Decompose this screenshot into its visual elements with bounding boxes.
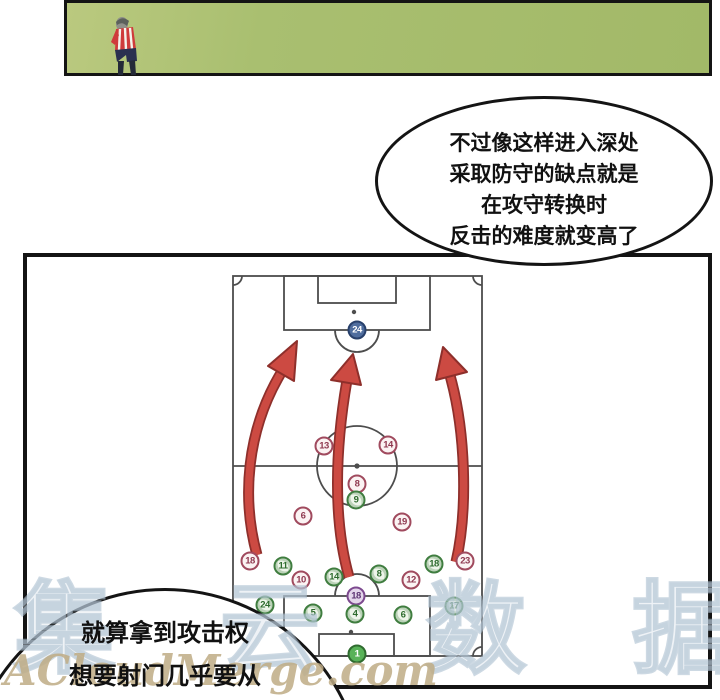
speech-bubble-top-text: 不过像这样进入深处 采取防守的缺点就是 在攻守转换时 反击的难度就变高了 (375, 128, 713, 252)
player-marker-red-14: 14 (379, 436, 398, 455)
player-marker-green-11: 11 (274, 557, 293, 576)
bubble-line: 不过像这样进入深处 (375, 128, 713, 159)
player-marker-red-13: 13 (315, 437, 334, 456)
comic-page: 241314861918101223189111481824546171 不过像… (0, 0, 720, 700)
bubble-line: 想要射门几乎要从 (0, 655, 365, 698)
player-marker-blue-gk-24: 24 (348, 321, 367, 340)
player-marker-red-10: 10 (292, 571, 311, 590)
player-marker-red-19: 19 (393, 513, 412, 532)
player-marker-red-23: 23 (456, 552, 475, 571)
player-marker-purple-18: 18 (347, 587, 366, 606)
player-marker-green-6: 6 (394, 606, 413, 625)
bubble-line: 就算拿到攻击权 (0, 612, 365, 655)
player-marker-green-8: 8 (370, 565, 389, 584)
bubble-line: 在攻守转换时 (375, 190, 713, 221)
speech-bubble-bottom-text: 就算拿到攻击权 想要射门几乎要从 (0, 612, 365, 698)
player-marker-red-12: 12 (402, 571, 421, 590)
player-marker-red-6: 6 (294, 507, 313, 526)
player-marker-green-9: 9 (347, 491, 366, 510)
player-marker-green-18: 18 (425, 555, 444, 574)
player-marker-green-17: 17 (445, 597, 464, 616)
bubble-line: 采取防守的缺点就是 (375, 159, 713, 190)
bubble-line: 反击的难度就变高了 (375, 221, 713, 252)
player-marker-red-18: 18 (241, 552, 260, 571)
player-marker-green-14: 14 (325, 568, 344, 587)
